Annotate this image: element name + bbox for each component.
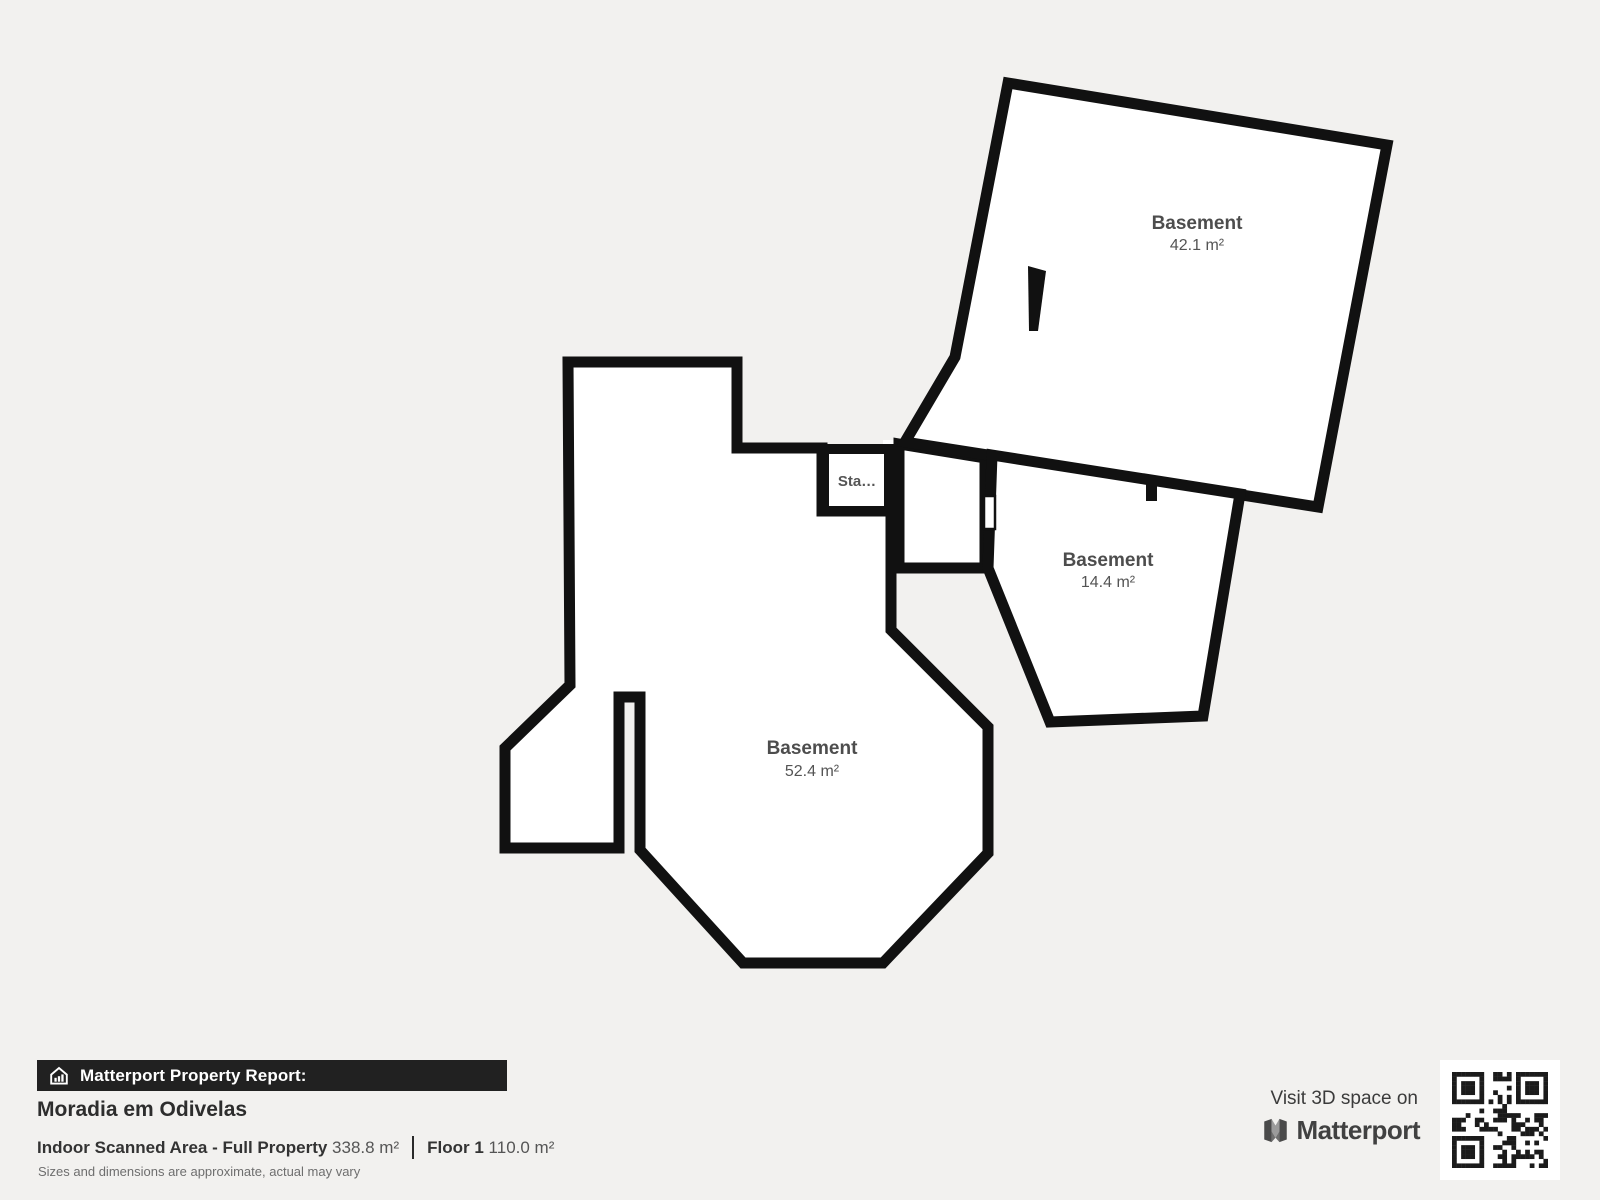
report-banner-label: Matterport Property Report: bbox=[80, 1066, 307, 1086]
door-opening bbox=[984, 496, 995, 529]
stat-value: 110.0 m² bbox=[489, 1138, 555, 1158]
scan-stats: Indoor Scanned Area - Full Property 338.… bbox=[37, 1136, 554, 1159]
room-label-stairs: Sta… bbox=[838, 473, 876, 490]
floor-plan: Basement 42.1 m² Basement 14.4 m² Baseme… bbox=[0, 0, 1600, 1200]
matterport-logo-icon bbox=[1262, 1117, 1289, 1144]
visit-cta: Visit 3D space on Matterport bbox=[1262, 1088, 1420, 1146]
room-label-area: 42.1 m² bbox=[1170, 237, 1225, 254]
wall-stub-mark bbox=[1146, 478, 1157, 501]
matterport-wordmark: Matterport bbox=[1296, 1115, 1420, 1146]
house-chart-icon bbox=[47, 1064, 71, 1088]
stat-label: Floor 1 bbox=[427, 1138, 484, 1158]
corridor-outline bbox=[899, 444, 985, 568]
report-banner: Matterport Property Report: bbox=[37, 1060, 507, 1091]
room-label-name: Basement bbox=[1063, 550, 1154, 571]
qr-code bbox=[1440, 1060, 1560, 1180]
property-name: Moradia em Odivelas bbox=[37, 1098, 247, 1122]
stat-label: Indoor Scanned Area - Full Property bbox=[37, 1138, 327, 1158]
stat-value: 338.8 m² bbox=[332, 1138, 399, 1158]
room-label-area: 14.4 m² bbox=[1081, 574, 1136, 591]
visit-3d-text: Visit 3D space on bbox=[1262, 1088, 1420, 1110]
room-label-name: Basement bbox=[767, 738, 858, 759]
disclaimer-text: Sizes and dimensions are approximate, ac… bbox=[38, 1164, 360, 1179]
room-label-name: Basement bbox=[1152, 213, 1243, 234]
room-basement-42-outline bbox=[905, 83, 1387, 507]
stat-divider bbox=[412, 1136, 414, 1159]
room-label-area: 52.4 m² bbox=[785, 763, 840, 780]
